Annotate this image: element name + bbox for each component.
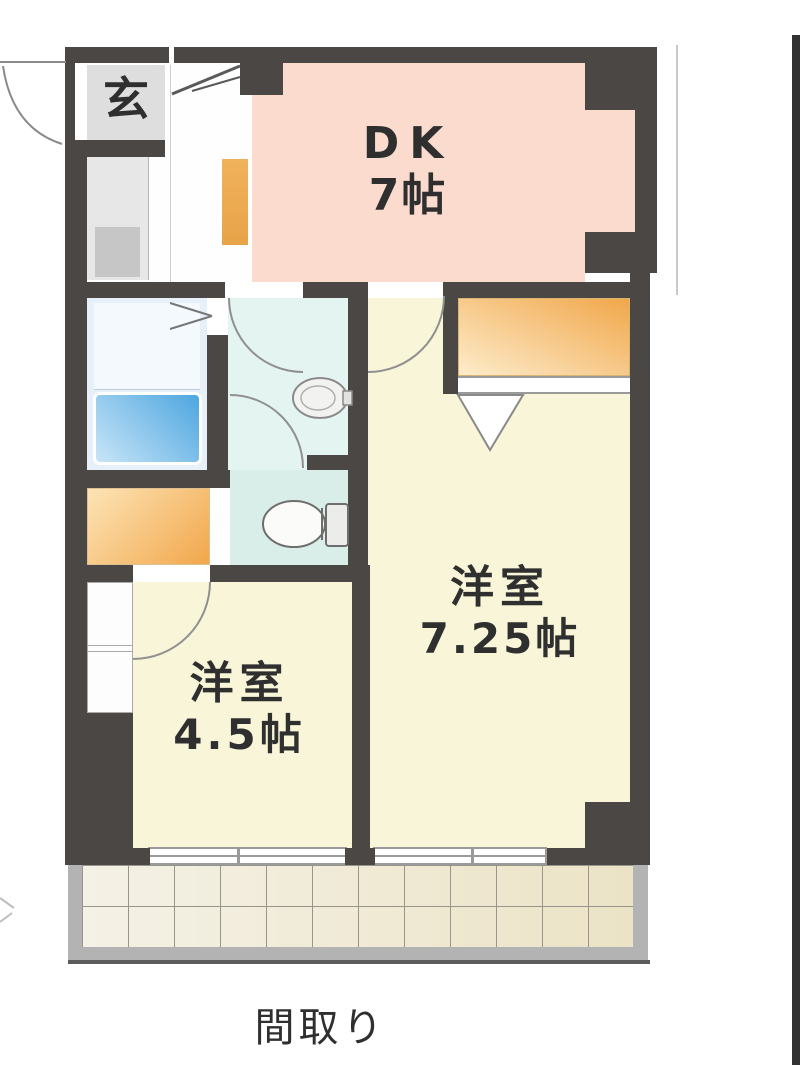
plan-edge-faint-line xyxy=(676,45,678,295)
bathroom-inner xyxy=(94,303,200,390)
wall-mid-a xyxy=(65,282,225,298)
western2-label-line2: 4.5帖 xyxy=(132,710,347,760)
wall-under-entrance xyxy=(65,140,165,157)
toilet-room-floor xyxy=(230,470,348,565)
washroom-floor xyxy=(228,298,348,470)
wall-top-gap xyxy=(169,47,174,63)
wall-bottom-c xyxy=(547,848,585,865)
wall-washroom-right xyxy=(348,282,368,582)
western1-label: 洋室 7.25帖 xyxy=(388,562,612,663)
window-divider xyxy=(471,849,474,863)
entry-door-swing-arc xyxy=(3,66,62,144)
entrance-label-text: 玄 xyxy=(103,72,149,126)
wall-under-toilet xyxy=(210,565,370,582)
entrance-label: 玄 xyxy=(87,72,165,126)
image-edge-strip xyxy=(792,35,800,1065)
window-rail xyxy=(150,855,345,857)
wall-right-top xyxy=(585,63,657,110)
window-divider xyxy=(237,849,240,863)
balcony-tiles xyxy=(82,865,633,947)
western1-label-line1: 洋室 xyxy=(388,562,612,614)
bathtub-icon xyxy=(93,392,202,465)
storage-box-orange xyxy=(87,488,210,565)
western2-label-line1: 洋室 xyxy=(132,658,347,710)
entrance-step-line xyxy=(170,65,171,282)
western2-label: 洋室 4.5帖 xyxy=(132,658,347,759)
caption-text: 間取り xyxy=(255,1005,387,1051)
floor-plan-page: 玄 DK 7帖 洋室 7.25帖 洋室 4.5帖 間取り xyxy=(0,0,800,1065)
dk-label-line2: 7帖 xyxy=(328,170,488,222)
dk-label: DK 7帖 xyxy=(328,118,488,222)
wall-right-lower xyxy=(630,273,650,804)
wall-entry-stub xyxy=(240,63,283,95)
western1-label-line2: 7.25帖 xyxy=(388,614,612,664)
wall-toilet-top xyxy=(307,455,350,470)
dk-label-line1: DK xyxy=(328,118,488,170)
wall-pillar-bottom-left xyxy=(65,713,133,865)
balcony-edge-line xyxy=(68,960,650,964)
western1-window xyxy=(373,847,547,865)
crop-artifact-mark xyxy=(0,898,14,922)
caption: 間取り xyxy=(228,995,413,1053)
western1-closet xyxy=(458,298,630,376)
wall-corner-step-a xyxy=(585,802,650,865)
wall-rooms-divider xyxy=(352,582,370,865)
wall-left-doorside xyxy=(65,63,75,145)
western1-closet-track xyxy=(458,376,630,394)
wall-right-mid xyxy=(585,232,657,273)
wall-closet-stub xyxy=(443,282,458,394)
kitchen-sink-unit xyxy=(95,227,140,277)
wall-mid-c xyxy=(445,282,650,298)
western2-side-closet-divider xyxy=(88,645,132,652)
dk-bay-extension xyxy=(585,110,635,232)
dk-counter xyxy=(220,157,250,247)
wall-bath-divider xyxy=(207,335,228,470)
wall-top xyxy=(65,47,657,63)
wall-under-storage xyxy=(65,565,133,582)
wall-under-bath xyxy=(65,470,230,488)
window-rail xyxy=(375,855,545,857)
wall-bottom-b xyxy=(345,848,375,865)
western2-window xyxy=(148,847,347,865)
wall-right-bay xyxy=(635,110,657,232)
